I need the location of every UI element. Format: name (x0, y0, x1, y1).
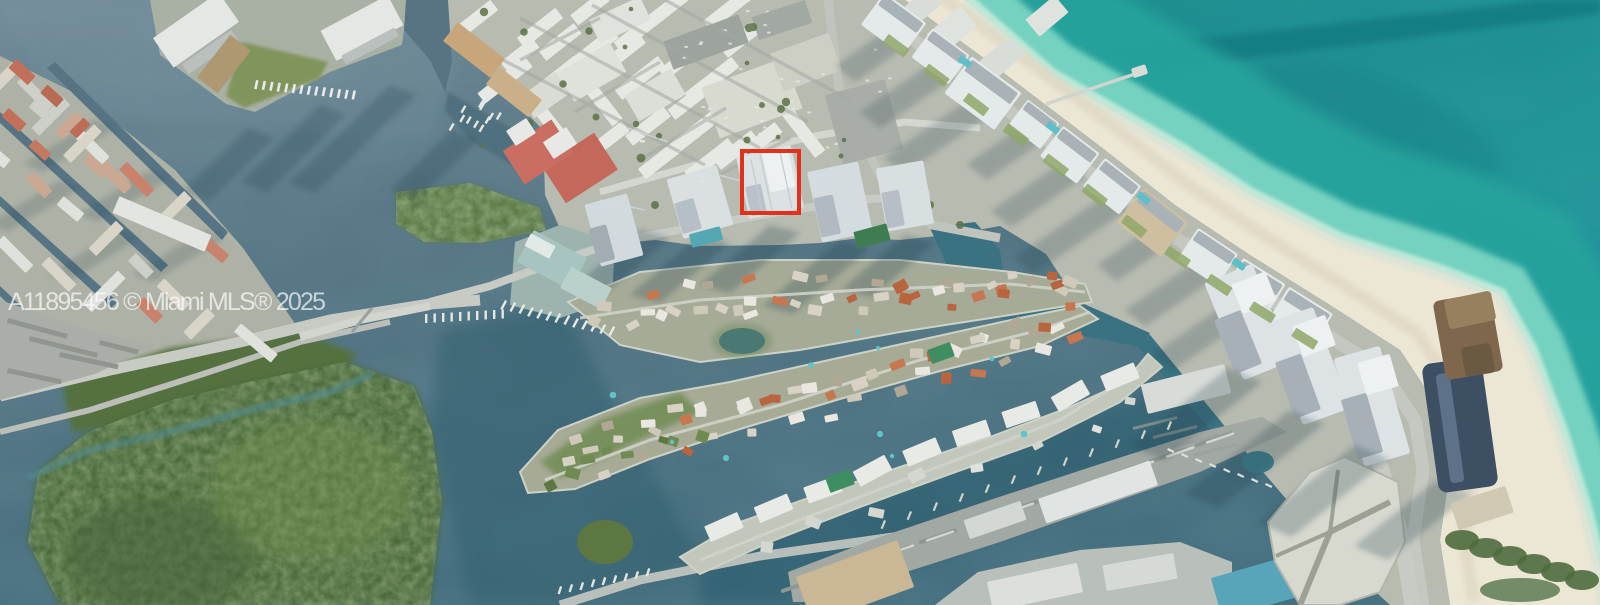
svg-text:A11895456 © Miami MLS® 2025: A11895456 © Miami MLS® 2025 (8, 288, 326, 316)
